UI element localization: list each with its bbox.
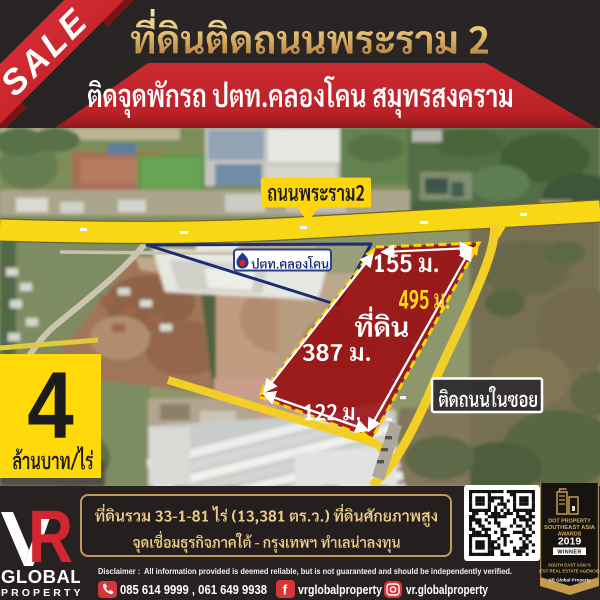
svg-text:2019: 2019: [558, 536, 582, 548]
svg-text:DOT PROPERTY: DOT PROPERTY: [548, 519, 591, 525]
svg-text:SOUTH EAST ASIA'S: SOUTH EAST ASIA'S: [548, 563, 591, 568]
svg-text:WINNER: WINNER: [557, 549, 581, 555]
svg-text:BEST REAL ESTATE AGENCIES: BEST REAL ESTATE AGENCIES: [539, 568, 600, 573]
svg-text:VR Global Property: VR Global Property: [548, 578, 591, 583]
svg-text:SOUTHEAST ASIA: SOUTHEAST ASIA: [544, 525, 596, 531]
